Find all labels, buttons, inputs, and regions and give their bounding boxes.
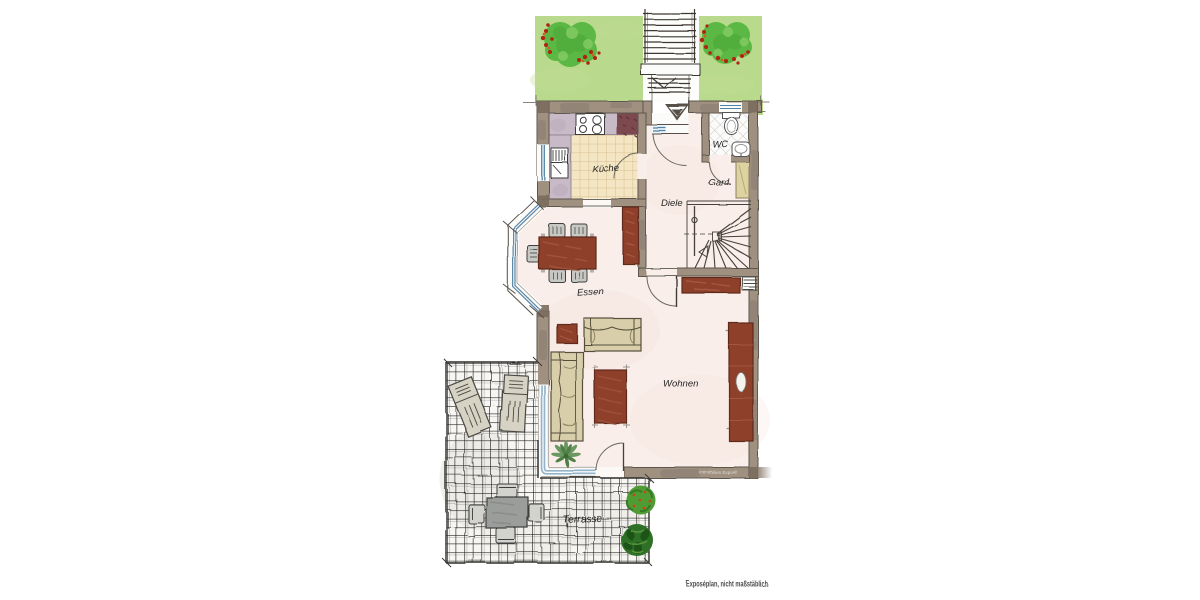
svg-text:Terrasse: Terrasse (563, 513, 602, 526)
svg-text:Diele: Diele (661, 198, 683, 209)
svg-text:Gard.: Gard. (708, 177, 732, 188)
svg-text:Immobilien Exposé: Immobilien Exposé (699, 470, 738, 475)
svg-text:WC: WC (712, 139, 728, 150)
svg-text:Exposéplan, nicht maßstäblich: Exposéplan, nicht maßstäblich (686, 580, 768, 589)
svg-text:Küche: Küche (592, 163, 619, 175)
svg-text:Essen: Essen (577, 286, 604, 299)
svg-text:Wohnen: Wohnen (663, 379, 698, 390)
